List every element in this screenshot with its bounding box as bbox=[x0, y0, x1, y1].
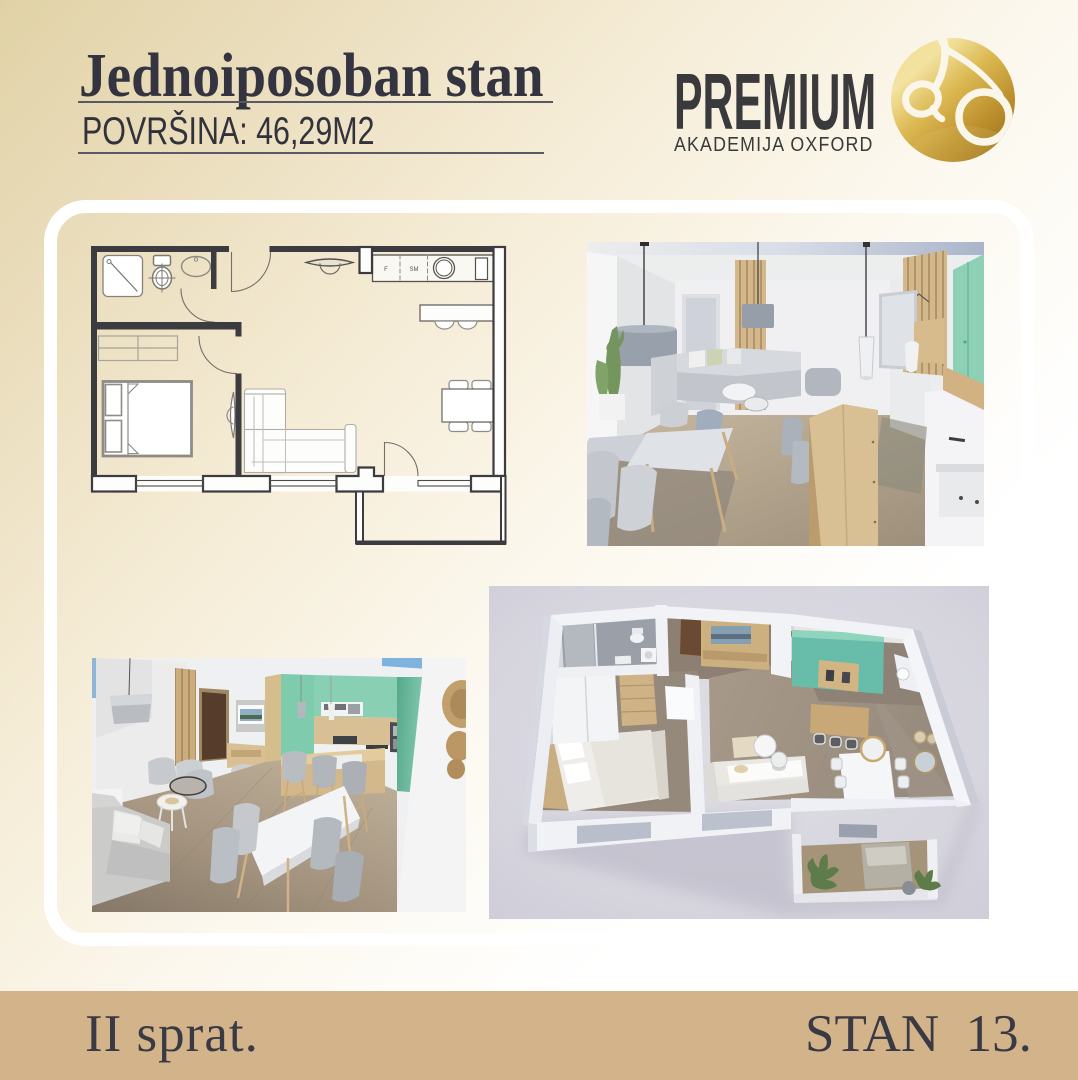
svg-text:F: F bbox=[384, 267, 388, 273]
svg-text:SM: SM bbox=[410, 267, 419, 273]
